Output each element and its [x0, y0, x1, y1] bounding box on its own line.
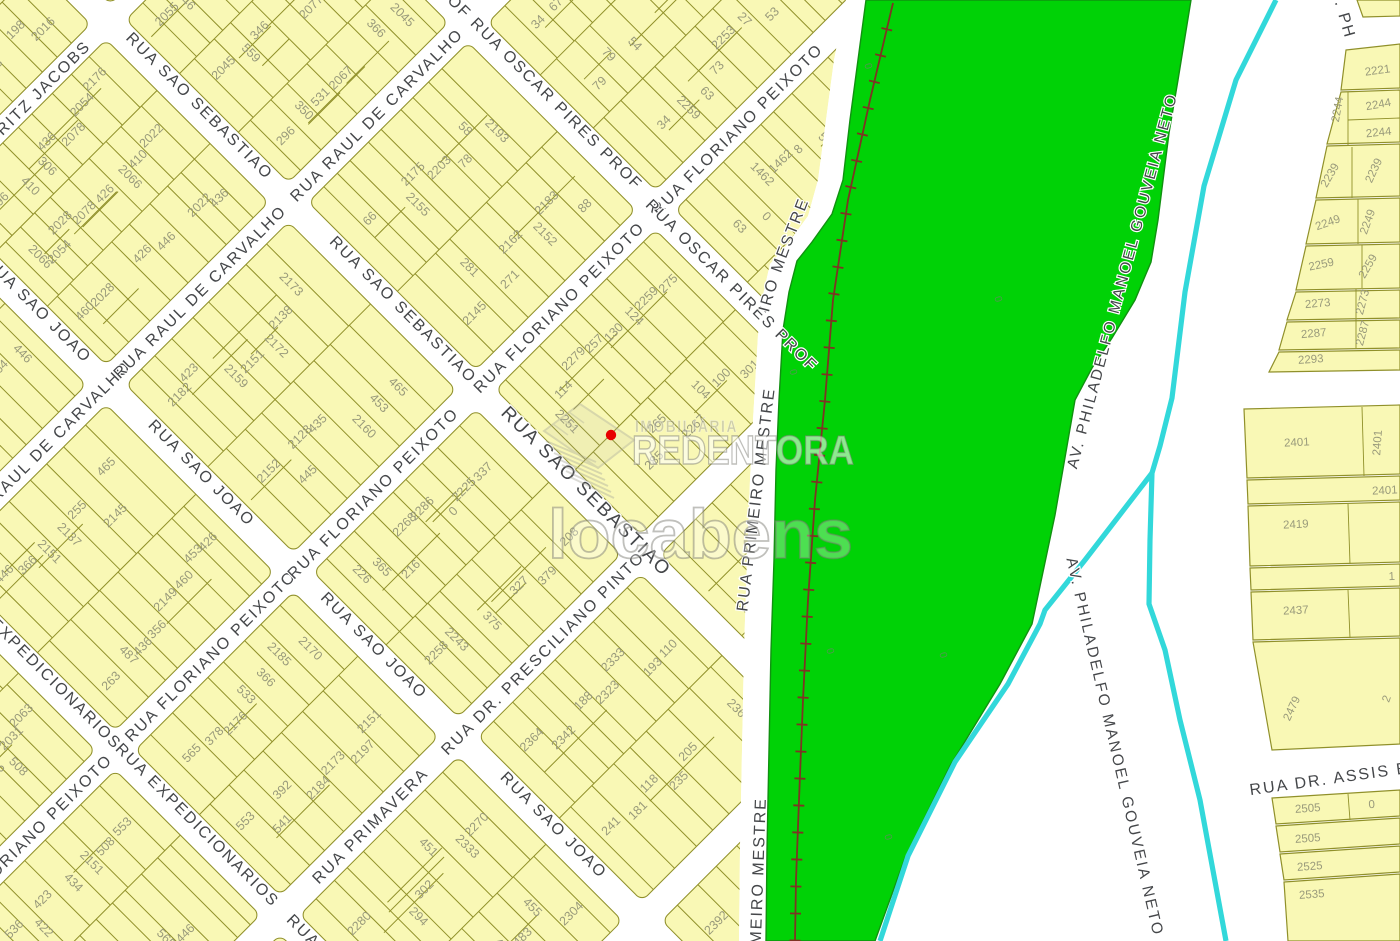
svg-text:locabens: locabens: [548, 495, 853, 573]
svg-text:2419: 2419: [1283, 518, 1309, 531]
svg-text:2293: 2293: [1298, 353, 1324, 367]
svg-text:REDENTORA: REDENTORA: [632, 427, 854, 473]
svg-text:2401: 2401: [1372, 484, 1398, 497]
svg-text:2273: 2273: [1304, 297, 1331, 311]
svg-text:0: 0: [1368, 799, 1375, 811]
svg-text:2401: 2401: [1371, 430, 1385, 456]
svg-text:2401: 2401: [1284, 436, 1310, 449]
svg-text:2287: 2287: [1300, 327, 1327, 341]
svg-text:1: 1: [1388, 571, 1395, 583]
svg-text:2505: 2505: [1295, 832, 1321, 846]
svg-text:2505: 2505: [1295, 802, 1321, 816]
svg-text:2437: 2437: [1283, 604, 1309, 617]
svg-text:2535: 2535: [1299, 888, 1325, 902]
svg-text:2525: 2525: [1297, 860, 1323, 874]
